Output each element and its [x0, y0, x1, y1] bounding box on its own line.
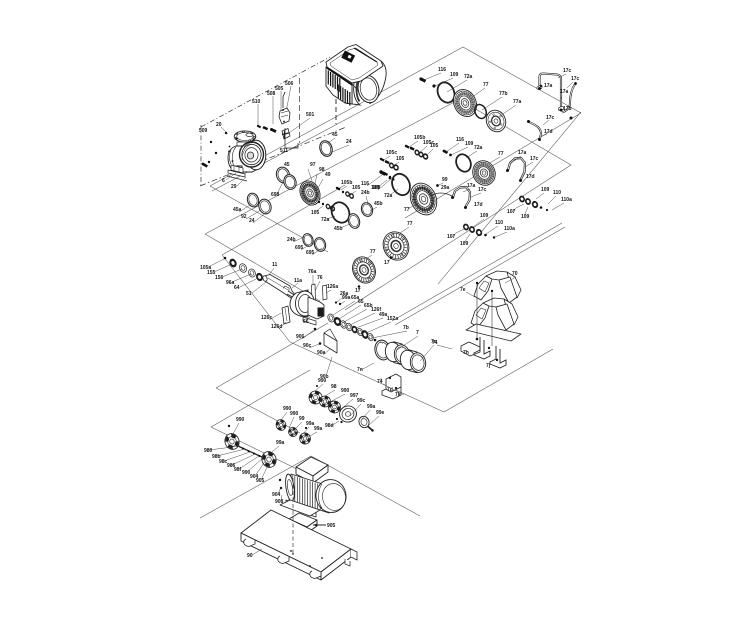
svg-text:49: 49 [325, 172, 331, 178]
svg-text:51: 51 [246, 291, 252, 297]
svg-text:24: 24 [249, 218, 255, 224]
svg-text:99: 99 [299, 416, 305, 422]
svg-text:76a: 76a [308, 269, 317, 275]
svg-text:905: 905 [256, 478, 265, 484]
svg-text:17: 17 [355, 288, 361, 294]
svg-text:990: 990 [318, 378, 327, 384]
svg-text:24b: 24b [361, 190, 370, 196]
svg-text:116: 116 [361, 181, 369, 187]
svg-text:156: 156 [215, 275, 224, 281]
svg-text:906: 906 [296, 334, 305, 340]
svg-text:90c: 90c [303, 343, 312, 349]
svg-text:17b: 17b [563, 106, 572, 112]
svg-text:99a: 99a [342, 295, 351, 301]
svg-text:45a: 45a [233, 207, 242, 213]
svg-text:109: 109 [541, 187, 550, 193]
svg-text:17a: 17a [467, 183, 476, 189]
svg-text:99a: 99a [367, 404, 376, 410]
svg-text:110a: 110a [561, 197, 572, 203]
svg-text:509: 509 [199, 128, 208, 134]
svg-text:105: 105 [396, 156, 405, 162]
svg-text:109: 109 [480, 213, 489, 219]
svg-text:99: 99 [442, 177, 448, 183]
svg-text:7b: 7b [403, 325, 409, 331]
svg-text:116: 116 [456, 137, 464, 143]
svg-text:7n: 7n [357, 367, 363, 373]
svg-text:77: 77 [483, 82, 489, 88]
svg-text:74: 74 [432, 340, 438, 346]
svg-text:72a: 72a [464, 74, 473, 80]
svg-text:695: 695 [295, 245, 304, 251]
svg-text:7h: 7h [463, 350, 469, 356]
svg-text:76: 76 [317, 275, 323, 281]
svg-text:126c: 126c [261, 315, 272, 321]
svg-text:17d: 17d [544, 129, 553, 135]
svg-text:7j: 7j [486, 363, 491, 369]
svg-text:66: 66 [303, 319, 309, 325]
svg-text:92: 92 [241, 214, 247, 220]
svg-text:77a: 77a [513, 99, 522, 105]
svg-text:511: 511 [280, 148, 288, 154]
svg-text:98: 98 [331, 384, 337, 390]
svg-text:109: 109 [521, 214, 530, 220]
svg-text:17a: 17a [544, 83, 553, 89]
svg-text:29: 29 [231, 184, 237, 190]
svg-text:109: 109 [465, 141, 474, 147]
svg-text:45: 45 [284, 162, 290, 168]
svg-text:77b: 77b [499, 91, 508, 97]
svg-text:695: 695 [306, 250, 315, 256]
svg-text:98d: 98d [325, 423, 334, 429]
svg-text:11: 11 [272, 262, 278, 268]
svg-text:505: 505 [275, 86, 284, 92]
svg-text:506: 506 [285, 81, 294, 87]
svg-text:29a: 29a [441, 185, 450, 191]
svg-text:152a: 152a [387, 316, 398, 322]
svg-text:17d: 17d [474, 202, 483, 208]
svg-text:109: 109 [371, 185, 380, 191]
svg-text:11a: 11a [294, 278, 302, 284]
svg-text:17c: 17c [563, 68, 572, 74]
svg-text:64: 64 [234, 285, 240, 291]
svg-text:116: 116 [438, 67, 446, 73]
svg-text:77: 77 [370, 249, 376, 255]
svg-text:990: 990 [290, 411, 299, 417]
svg-text:105: 105 [352, 185, 361, 191]
svg-text:501: 501 [306, 112, 315, 118]
svg-text:24b: 24b [287, 237, 296, 243]
svg-text:908: 908 [275, 499, 284, 505]
svg-text:698: 698 [271, 192, 280, 198]
svg-text:72a: 72a [321, 217, 330, 223]
svg-text:105: 105 [430, 143, 439, 149]
svg-text:45b: 45b [374, 201, 383, 207]
svg-text:90a: 90a [317, 350, 326, 356]
svg-text:17a: 17a [518, 150, 527, 156]
svg-text:17c: 17c [478, 187, 487, 193]
svg-text:17d: 17d [526, 174, 535, 180]
svg-text:74: 74 [377, 379, 383, 385]
svg-text:45: 45 [332, 132, 338, 138]
svg-text:97: 97 [310, 162, 316, 168]
svg-text:110: 110 [553, 190, 561, 196]
svg-text:110a: 110a [504, 226, 515, 232]
svg-text:65: 65 [358, 299, 364, 305]
svg-text:110: 110 [495, 220, 503, 226]
svg-text:990: 990 [341, 388, 350, 394]
svg-text:72a: 72a [474, 145, 483, 151]
svg-text:99a: 99a [276, 440, 285, 446]
svg-text:6: 6 [222, 178, 225, 184]
svg-text:17c: 17c [571, 76, 580, 82]
svg-text:126a: 126a [327, 284, 338, 290]
svg-text:109: 109 [450, 72, 459, 78]
svg-text:105: 105 [311, 210, 320, 216]
svg-text:99e: 99e [376, 410, 385, 416]
svg-text:77: 77 [407, 221, 413, 227]
svg-text:990: 990 [236, 417, 245, 423]
svg-text:7: 7 [416, 330, 419, 336]
svg-text:70: 70 [512, 271, 518, 277]
svg-text:904: 904 [272, 492, 281, 498]
svg-text:99a: 99a [314, 426, 323, 432]
svg-text:510: 510 [252, 99, 261, 105]
svg-text:7d: 7d [387, 387, 393, 393]
svg-text:99c: 99c [357, 398, 366, 404]
svg-text:109: 109 [460, 241, 469, 247]
svg-text:98: 98 [319, 167, 325, 173]
svg-text:77: 77 [404, 207, 410, 213]
svg-text:90: 90 [247, 553, 253, 559]
svg-text:17c: 17c [546, 115, 555, 121]
svg-text:7e: 7e [460, 287, 466, 293]
svg-text:24: 24 [346, 139, 352, 145]
svg-text:17a: 17a [560, 89, 569, 95]
svg-text:905: 905 [327, 523, 336, 529]
svg-text:17c: 17c [530, 156, 539, 162]
svg-text:105b: 105b [341, 180, 352, 186]
svg-text:45b: 45b [334, 226, 343, 232]
svg-text:77: 77 [498, 151, 504, 157]
